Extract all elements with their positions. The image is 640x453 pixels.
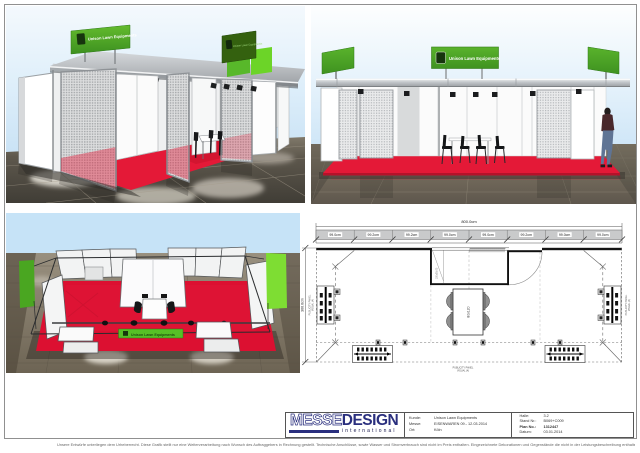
svg-text:99.2cm: 99.2cm xyxy=(406,233,418,237)
svg-text:Unison Lawn Equipments: Unison Lawn Equipments xyxy=(131,333,175,337)
svg-text:100x50x70: 100x50x70 xyxy=(437,267,439,279)
svg-text:80x120: 80x120 xyxy=(467,306,471,317)
svg-text:99.2cm: 99.2cm xyxy=(368,233,380,237)
svg-text:99.0cm: 99.0cm xyxy=(482,233,494,237)
svg-text:Unison Lawn Equipments: Unison Lawn Equipments xyxy=(449,56,501,61)
svg-text:800.0cm: 800.0cm xyxy=(461,219,477,224)
svg-text:99.0cm: 99.0cm xyxy=(329,233,341,237)
svg-text:99.0cm: 99.0cm xyxy=(559,233,571,237)
svg-text:99.0cm: 99.0cm xyxy=(597,233,609,237)
svg-text:VISUAL (4): VISUAL (4) xyxy=(628,299,631,311)
svg-text:300.0cm: 300.0cm xyxy=(300,298,304,312)
svg-text:99.0cm: 99.0cm xyxy=(444,233,456,237)
svg-text:VISUAL (4): VISUAL (4) xyxy=(457,370,469,373)
svg-text:VISUAL (4): VISUAL (4) xyxy=(311,299,314,311)
svg-text:99.2cm: 99.2cm xyxy=(521,233,533,237)
